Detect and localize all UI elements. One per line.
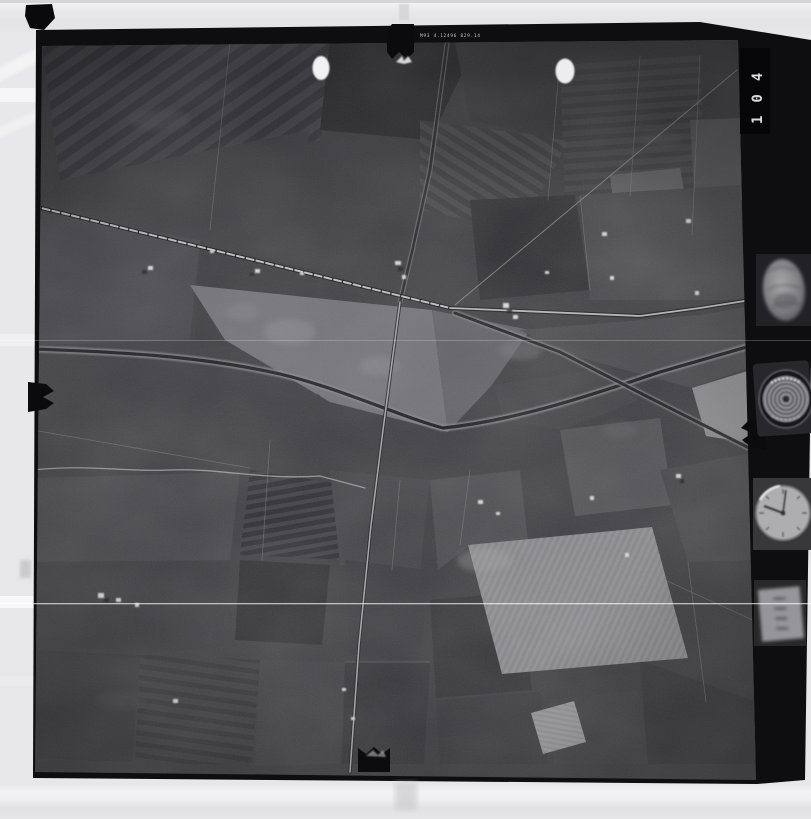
level-bubble-gauge	[756, 254, 811, 326]
counter-panel	[754, 580, 806, 646]
clock-dial	[753, 478, 811, 550]
white-dot-fiducial-right	[556, 59, 575, 84]
white-dot-fiducial-left	[313, 56, 330, 80]
edge-stamp-text: M93 4.12496 829.14	[420, 33, 481, 39]
top-left-corner-blob	[25, 4, 55, 30]
vignette	[35, 40, 756, 780]
bottom-margin-smudge	[395, 782, 417, 810]
altimeter-dial	[753, 360, 811, 437]
aerial-photograph	[0, 0, 811, 819]
frame-number: 104	[750, 60, 766, 124]
scan-canvas: M93 4.12496 829.14 104	[0, 0, 811, 819]
aerial-photo-scan: M93 4.12496 829.14 104	[0, 0, 811, 819]
